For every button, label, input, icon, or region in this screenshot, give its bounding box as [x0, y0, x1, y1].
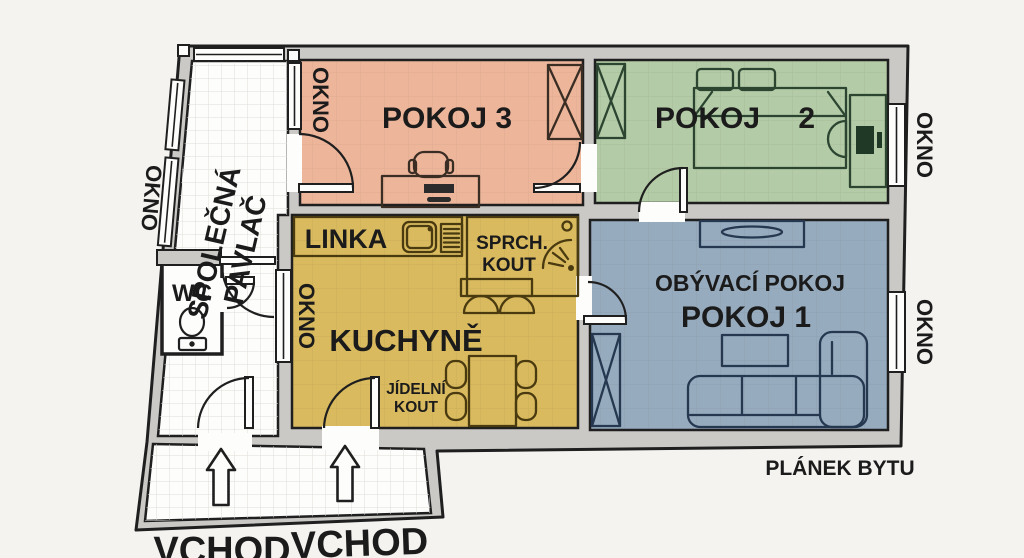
opening-kuchyne-vchod [322, 426, 379, 450]
label-sprch-line1: SPRCH. [476, 233, 548, 254]
label-obyvaci-pokoj: OBÝVACÍ POKOJ [655, 269, 845, 296]
label-jidelni-line2: KOUT [394, 399, 438, 416]
window-pokoj1 [888, 292, 905, 372]
entrance-walkway [145, 444, 431, 521]
label-sprch-line2: KOUT [482, 255, 536, 276]
window-pokoj2 [888, 104, 905, 186]
opening-pokoj2-pokoj1 [639, 202, 685, 222]
floor-plan-canvas: POKOJ 3 POKOJ 2 OBÝVACÍ POKOJ POKOJ 1 KU… [0, 0, 1024, 558]
vchod-label-right: VCHOD [290, 521, 429, 558]
okno-label-kuchyne: OKNO [294, 283, 319, 349]
window-pavlac-top [178, 45, 299, 61]
opening-pokoj3-pokoj2 [581, 144, 597, 192]
label-pokoj1: POKOJ 1 [681, 301, 811, 334]
label-linka: LINKA [305, 224, 388, 254]
label-pokoj2: POKOJ 2 [655, 102, 815, 135]
label-wc: WC [172, 280, 212, 307]
label-pokoj3: POKOJ 3 [382, 102, 512, 135]
okno-label-pokoj2: OKNO [912, 112, 937, 178]
opening-hall-vchod [198, 433, 252, 451]
label-kuchyne: KUCHYNĚ [329, 322, 482, 358]
okno-label-pokoj1: OKNO [912, 299, 937, 365]
window-kuchyne [276, 270, 291, 362]
okno-label-pokoj3: OKNO [308, 67, 333, 133]
window-pokoj3-pavlac [288, 63, 301, 129]
plan-caption: PLÁNEK BYTU [765, 457, 914, 480]
label-jidelni-line1: JÍDELNÍ [386, 381, 446, 398]
vchod-label-left: VCHOD [153, 530, 290, 558]
